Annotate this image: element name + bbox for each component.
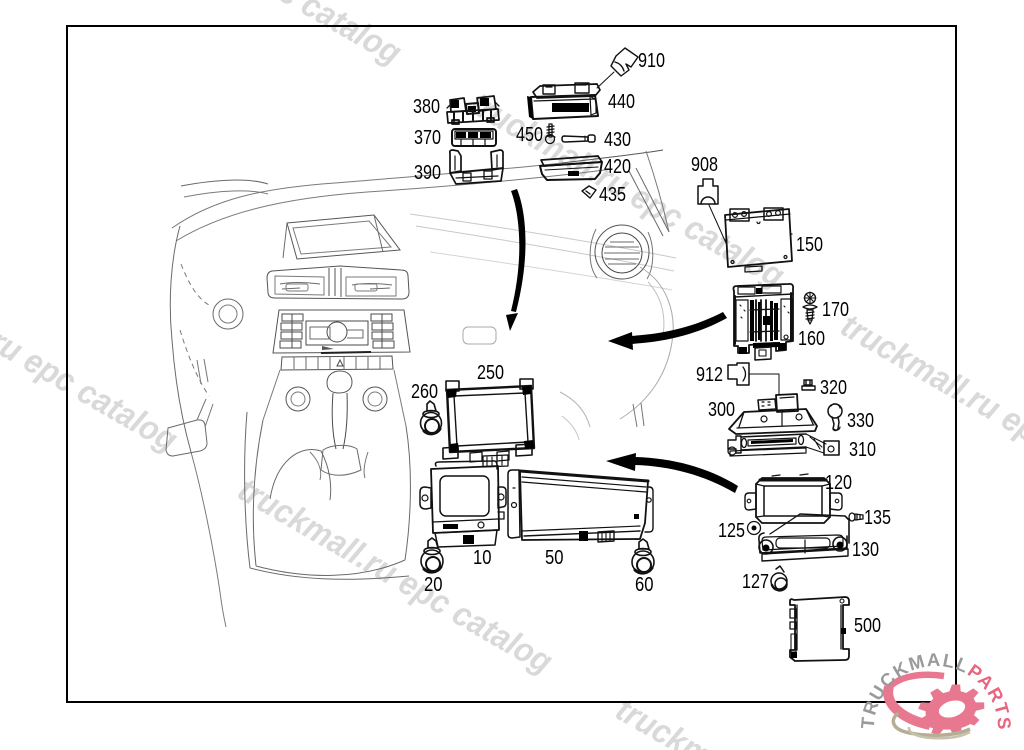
svg-text:908: 908 — [691, 153, 718, 176]
svg-text:250: 250 — [477, 361, 504, 384]
svg-text:truckmall.ru epc catalog: truckmall.ru epc catalog — [0, 248, 184, 459]
svg-text:912: 912 — [696, 363, 723, 386]
svg-text:10: 10 — [473, 546, 492, 569]
svg-text:20: 20 — [424, 573, 443, 596]
svg-text:440: 440 — [608, 90, 635, 113]
svg-text:170: 170 — [822, 298, 849, 321]
svg-text:310: 310 — [849, 438, 876, 461]
svg-text:370: 370 — [414, 126, 441, 149]
svg-text:120: 120 — [825, 471, 852, 494]
svg-text:truckmall.ru epc catalog: truckmall.ru epc catalog — [232, 470, 559, 681]
svg-text:450: 450 — [516, 123, 543, 146]
svg-text:truckmall.ru epc catalog: truckmall.ru epc catalog — [464, 84, 791, 295]
svg-text:60: 60 — [635, 573, 654, 596]
svg-text:435: 435 — [599, 183, 626, 206]
svg-text:260: 260 — [411, 380, 438, 403]
svg-text:380: 380 — [413, 95, 440, 118]
svg-text:500: 500 — [854, 614, 881, 637]
svg-text:160: 160 — [798, 327, 825, 350]
svg-text:420: 420 — [604, 155, 631, 178]
svg-text:130: 130 — [852, 538, 879, 561]
svg-text:320: 320 — [820, 376, 847, 399]
svg-text:50: 50 — [545, 546, 564, 569]
svg-text:330: 330 — [847, 409, 874, 432]
svg-text:150: 150 — [796, 233, 823, 256]
svg-text:125: 125 — [718, 519, 745, 542]
svg-text:910: 910 — [638, 49, 665, 72]
svg-text:127: 127 — [742, 570, 769, 593]
svg-text:390: 390 — [414, 161, 441, 184]
svg-text:430: 430 — [604, 128, 631, 151]
svg-text:135: 135 — [864, 506, 891, 529]
svg-text:truckmall.ru epc catalog: truckmall.ru epc catalog — [81, 0, 408, 72]
svg-text:300: 300 — [708, 398, 735, 421]
